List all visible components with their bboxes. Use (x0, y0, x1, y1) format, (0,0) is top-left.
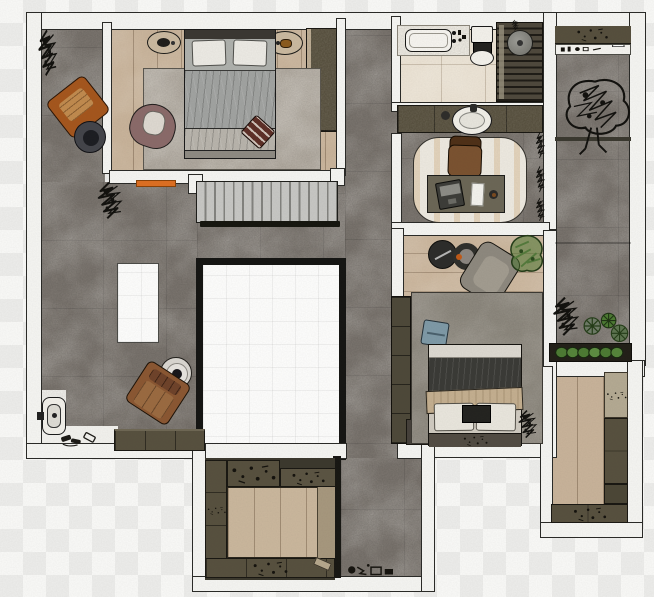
living-plant-icon (92, 176, 126, 230)
closet-right-floor (551, 374, 605, 506)
shrub-row-icon (550, 344, 631, 361)
soap-dish (441, 111, 450, 120)
wall-closet-bottom-left (192, 443, 206, 592)
bathtub (405, 29, 452, 52)
toilet-pipe (37, 412, 44, 420)
dark-blanket (429, 358, 521, 391)
wall-closet-right-right (627, 360, 643, 538)
open-void (196, 258, 346, 460)
door-marker-orange (136, 180, 176, 187)
headboard (185, 30, 275, 39)
closet-right-cabinet-mid (604, 418, 628, 484)
toilet-tank (471, 26, 493, 43)
bath-bottles (457, 28, 467, 44)
living-sideboard (114, 429, 205, 451)
desk (427, 175, 505, 213)
study-plant-strip-icon (534, 164, 546, 198)
bed-frame-end (429, 433, 521, 447)
toilet-bowl (470, 50, 494, 66)
wall-bedroom-right (336, 18, 346, 176)
closet-right-shelf-top (604, 372, 628, 418)
corridor-items-icon (342, 558, 400, 580)
table-plant-icon (83, 130, 99, 146)
balcony-shelf-white (555, 44, 631, 55)
balcony-floor-seam (555, 242, 631, 244)
bedroom2-corner-plant-icon (510, 408, 544, 444)
balcony-shelf-top (555, 26, 631, 44)
wall-closet-bottom-top (192, 443, 347, 459)
vanity-sink (452, 106, 492, 135)
lamp-icon (280, 39, 292, 48)
wall-closet-bottom-right (421, 443, 435, 592)
faucet-icon (470, 104, 477, 112)
pillow (192, 39, 227, 66)
orange-accent-dot (456, 254, 462, 260)
paper-icon (470, 183, 484, 207)
pillow (233, 39, 268, 66)
staircase (196, 181, 338, 223)
wall-closet-right-bottom (540, 522, 643, 538)
balcony-succulents-icon (578, 306, 632, 346)
balcony-tree-icon (556, 74, 634, 162)
bedroom2-plant-icon (502, 230, 548, 282)
island-counter (117, 263, 159, 343)
terrace-side-table (74, 121, 106, 153)
shower-head-icon (507, 30, 533, 56)
stair-shadow (200, 221, 340, 227)
wall-study-left (391, 133, 402, 227)
bottles-icon (556, 45, 630, 54)
bed-frame-end (185, 150, 275, 158)
shoes-icon (56, 431, 104, 449)
laptop-icon (435, 179, 465, 210)
wall-bedroom2-left (391, 228, 404, 298)
terrace-plant-icon (34, 26, 60, 86)
chair-cushion (141, 109, 167, 136)
study-plant-strip-icon (534, 196, 546, 226)
bedroom2-bed (428, 344, 522, 446)
office-chair (445, 135, 484, 178)
bed-tray (462, 405, 491, 423)
chair-cushion (58, 87, 95, 123)
study-plant-strip-icon (534, 130, 546, 164)
wall-hung-toilet (42, 397, 66, 435)
closet-bottom-left-column (205, 460, 227, 560)
cup-icon (489, 190, 498, 199)
closet-right-cabinet-low (604, 484, 628, 504)
closet-bottom-bench (317, 487, 335, 558)
closet-bottom-top-cabinet-b (280, 468, 336, 487)
floor-plan-canvas (0, 0, 654, 597)
closet-bottom-top-cabinet-a (227, 460, 280, 487)
chair-seat (447, 144, 482, 177)
tub-control-icon (452, 39, 456, 43)
lamp-icon (157, 38, 170, 47)
nightstand-left (147, 31, 181, 54)
wall-terrace-divider (102, 22, 112, 174)
mattress-edge (429, 345, 521, 358)
closet-right-cabinet-bottom (551, 504, 628, 523)
tub-faucet-icon (452, 31, 456, 35)
